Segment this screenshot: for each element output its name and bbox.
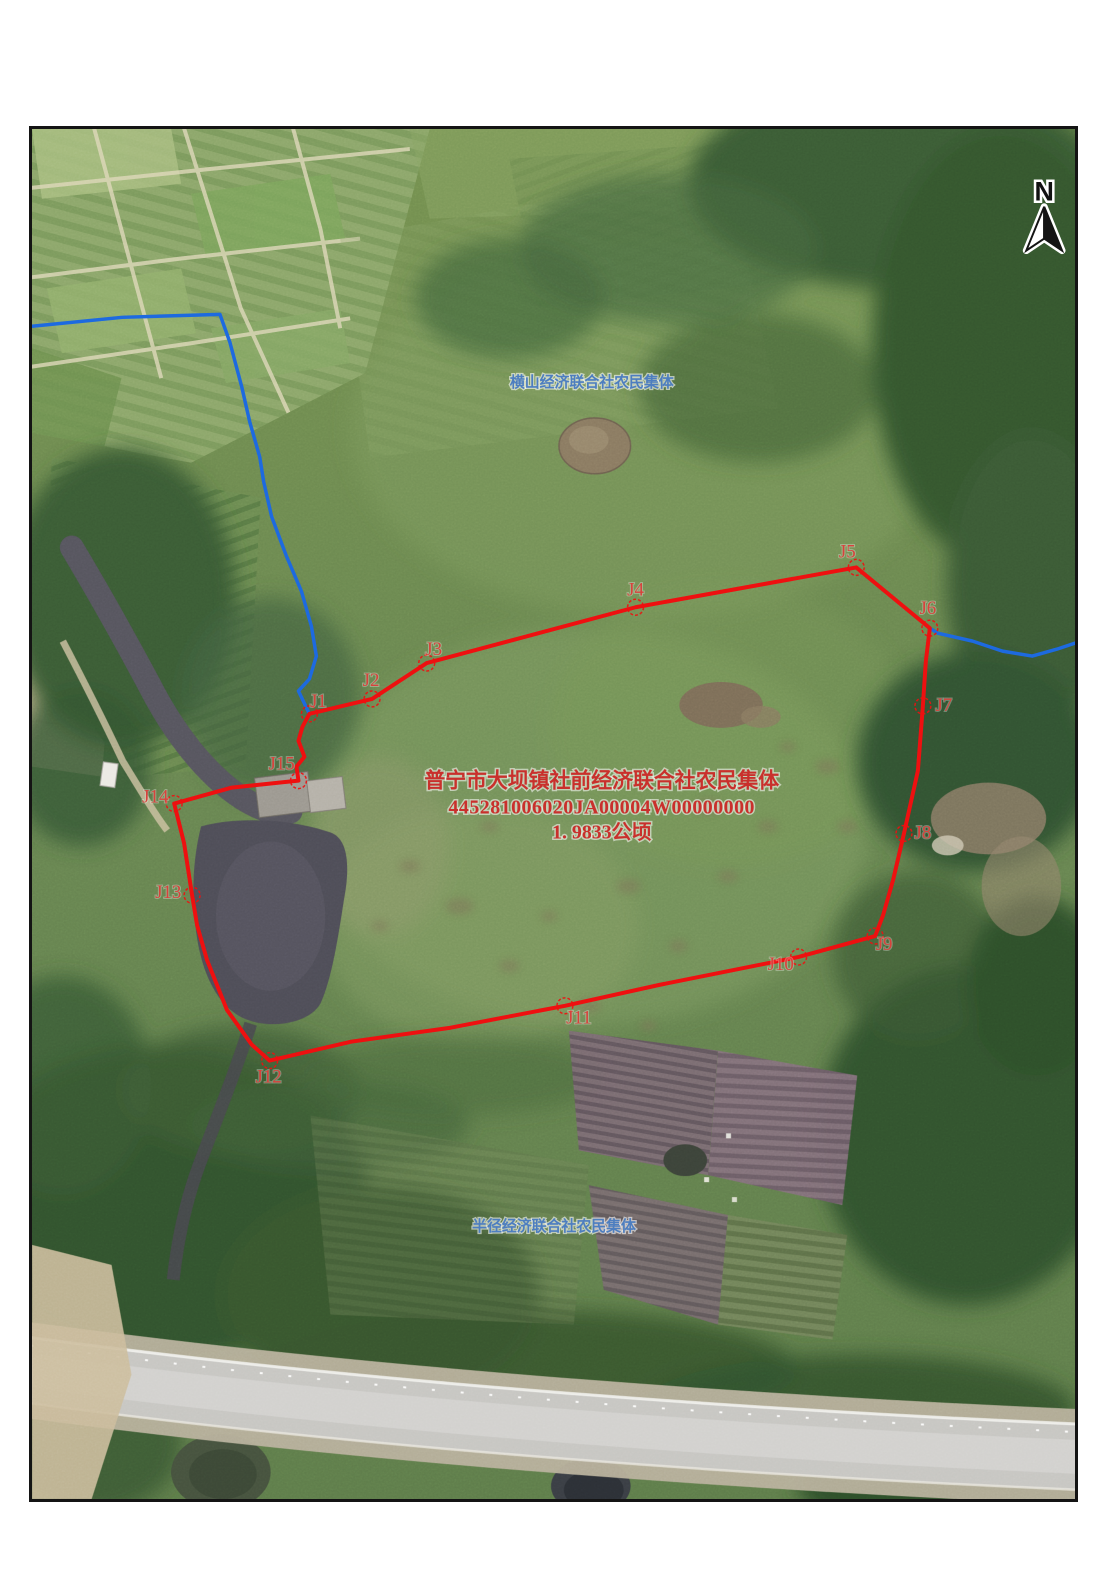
vertex-label-J6: J6 [919, 598, 936, 619]
parcel-code-label: 445281006020JA00004W00000000 [448, 796, 754, 818]
north-label: N [1034, 177, 1053, 207]
vertex-label-J14: J14 [142, 787, 169, 808]
parcel-area-label: 1. 9833公顷 [552, 820, 651, 843]
vertex-label-J13: J13 [155, 882, 181, 903]
vertex-label-J5: J5 [839, 541, 856, 562]
vertex-label-J2: J2 [363, 670, 380, 691]
aerial-parcel-map: J1J2J3J4J5J6J7J8J9J10J11J12J13J14J15 横山经… [32, 129, 1075, 1499]
vertex-label-J7: J7 [935, 695, 952, 716]
vertex-label-J10: J10 [768, 954, 794, 975]
vertex-label-J3: J3 [425, 639, 442, 660]
parcel-owner-label: 普宁市大坝镇社前经济联合社农民集体 [424, 769, 779, 793]
vertex-label-J15: J15 [268, 754, 294, 775]
neighbor-label-bottom: 半径经济联合社农民集体 [472, 1217, 636, 1235]
vertex-label-J4: J4 [627, 579, 644, 600]
vertex-label-J8: J8 [914, 822, 931, 843]
map-frame: J1J2J3J4J5J6J7J8J9J10J11J12J13J14J15 横山经… [29, 126, 1078, 1502]
neighbor-label-top: 横山经济联合社农民集体 [510, 373, 674, 391]
vertex-label-J1: J1 [310, 691, 327, 712]
vertex-label-J12: J12 [256, 1067, 282, 1088]
vertex-label-J11: J11 [566, 1008, 592, 1029]
page: J1J2J3J4J5J6J7J8J9J10J11J12J13J14J15 横山经… [0, 0, 1111, 1571]
vertex-label-J9: J9 [876, 934, 893, 955]
